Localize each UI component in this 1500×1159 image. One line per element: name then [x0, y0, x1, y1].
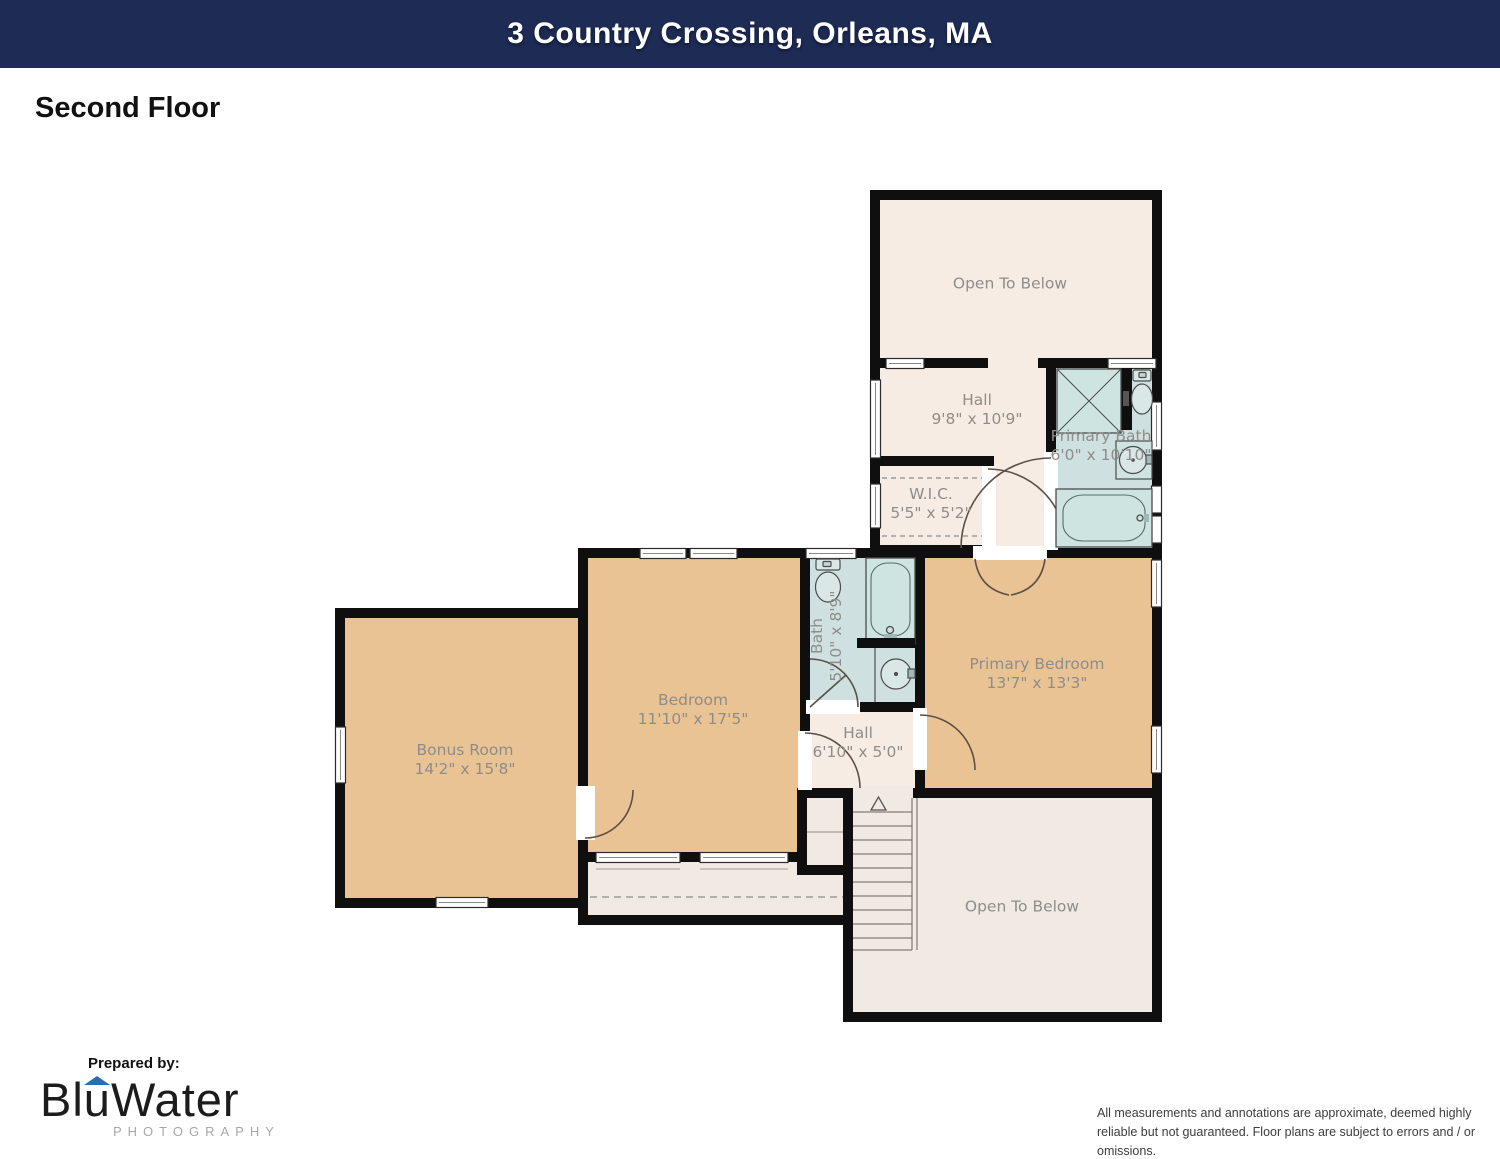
closet: [797, 788, 853, 875]
logo-u-wrap: u: [84, 1072, 111, 1127]
room-label-bath: Bath 5'10" x 8'9": [808, 590, 846, 681]
room-label-open-to-below-top: Open To Below: [953, 275, 1067, 294]
disclaimer-text: All measurements and annotations are app…: [1097, 1104, 1477, 1159]
logo-text-part3: Water: [111, 1073, 240, 1126]
logo-roof-icon: [84, 1076, 110, 1085]
room-label-primary-bath: Primary Bath 6'0" x 10'10": [1051, 427, 1152, 465]
floor-title: Second Floor: [35, 92, 220, 125]
prepared-by-label: Prepared by:: [88, 1055, 180, 1072]
room-label-open-to-below-bottom: Open To Below: [965, 898, 1079, 917]
address-title: 3 Country Crossing, Orleans, MA: [507, 17, 993, 51]
logo-subtitle: PHOTOGRAPHY: [113, 1124, 280, 1139]
room-label-hall-upper: Hall 9'8" x 10'9": [931, 391, 1022, 429]
room-label-primary-bedroom: Primary Bedroom 13'7" x 13'3": [970, 655, 1105, 693]
room-label-bedroom: Bedroom 11'10" x 17'5": [638, 691, 749, 729]
room-label-hall-lower: Hall 6'10" x 5'0": [812, 724, 903, 762]
room-label-bonus-room: Bonus Room 14'2" x 15'8": [415, 741, 516, 779]
room-label-wic: W.I.C. 5'5" x 5'2": [890, 485, 971, 523]
page: 3 Country Crossing, Orleans, MA Second F…: [0, 0, 1500, 1159]
bluwater-logo: BluWater: [40, 1072, 240, 1127]
logo-text-part1: Bl: [40, 1073, 84, 1126]
address-banner: 3 Country Crossing, Orleans, MA: [0, 0, 1500, 68]
